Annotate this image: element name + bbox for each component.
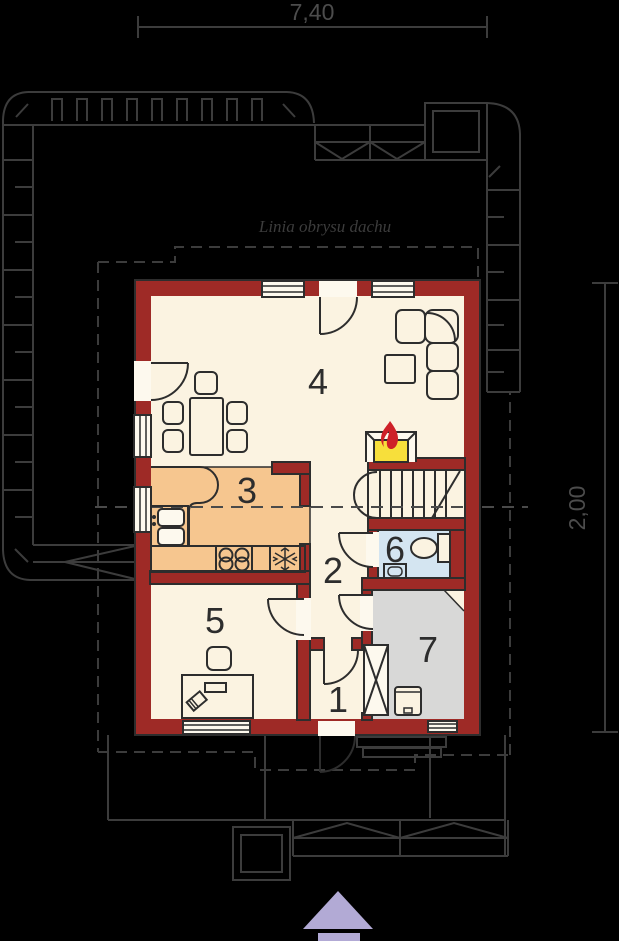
room-label-4: 4 — [308, 361, 328, 402]
floor-plan-canvas: 7,40 2,00 Linia obrysu dachu — [0, 0, 619, 941]
coffee-table — [385, 355, 415, 383]
room-label-2: 2 — [323, 550, 343, 591]
toilet-bowl — [411, 538, 437, 558]
terrace-band-top — [3, 92, 315, 125]
exterior-step-room7 — [357, 737, 446, 747]
terrace-band-left — [3, 120, 135, 580]
chair — [163, 430, 183, 452]
window-living-left — [134, 415, 151, 457]
entrance-arrow — [303, 891, 373, 941]
dining-table — [190, 398, 223, 455]
window-room5-bottom — [183, 721, 250, 734]
chair — [227, 402, 247, 424]
floor-plan-svg: 7,40 2,00 Linia obrysu dachu — [0, 0, 619, 941]
door-entrance — [318, 721, 355, 772]
window-living-top-2 — [372, 281, 414, 297]
room-label-5: 5 — [205, 600, 225, 641]
monitor — [205, 683, 226, 692]
porch — [108, 735, 508, 880]
window-kitchen-left — [134, 487, 151, 532]
right-dimension: 2,00 — [564, 283, 618, 732]
window-utility-bottom — [428, 721, 457, 732]
terrace-steps-left — [30, 545, 135, 580]
top-dimension-value: 7,40 — [290, 0, 335, 25]
room-label-7: 7 — [418, 629, 438, 670]
room-label-1: 1 — [328, 679, 348, 720]
room-label-3: 3 — [237, 470, 257, 511]
sink-basin — [158, 509, 184, 526]
window-living-top-1 — [262, 281, 304, 297]
top-dimension: 7,40 — [138, 0, 487, 38]
boiler — [395, 687, 421, 715]
toilet-tank — [438, 534, 450, 562]
sink-basin — [158, 528, 184, 545]
chair — [163, 402, 183, 424]
chair — [227, 430, 247, 452]
exterior-steps-top — [315, 125, 425, 160]
ventilation-shaft — [364, 645, 388, 715]
chimney-outline — [425, 103, 487, 160]
desk-chair — [207, 647, 231, 670]
room-label-6: 6 — [385, 529, 405, 570]
roof-outline-label: Linia obrysu dachu — [258, 217, 391, 236]
right-dimension-value: 2,00 — [564, 486, 590, 531]
chair — [195, 372, 217, 394]
